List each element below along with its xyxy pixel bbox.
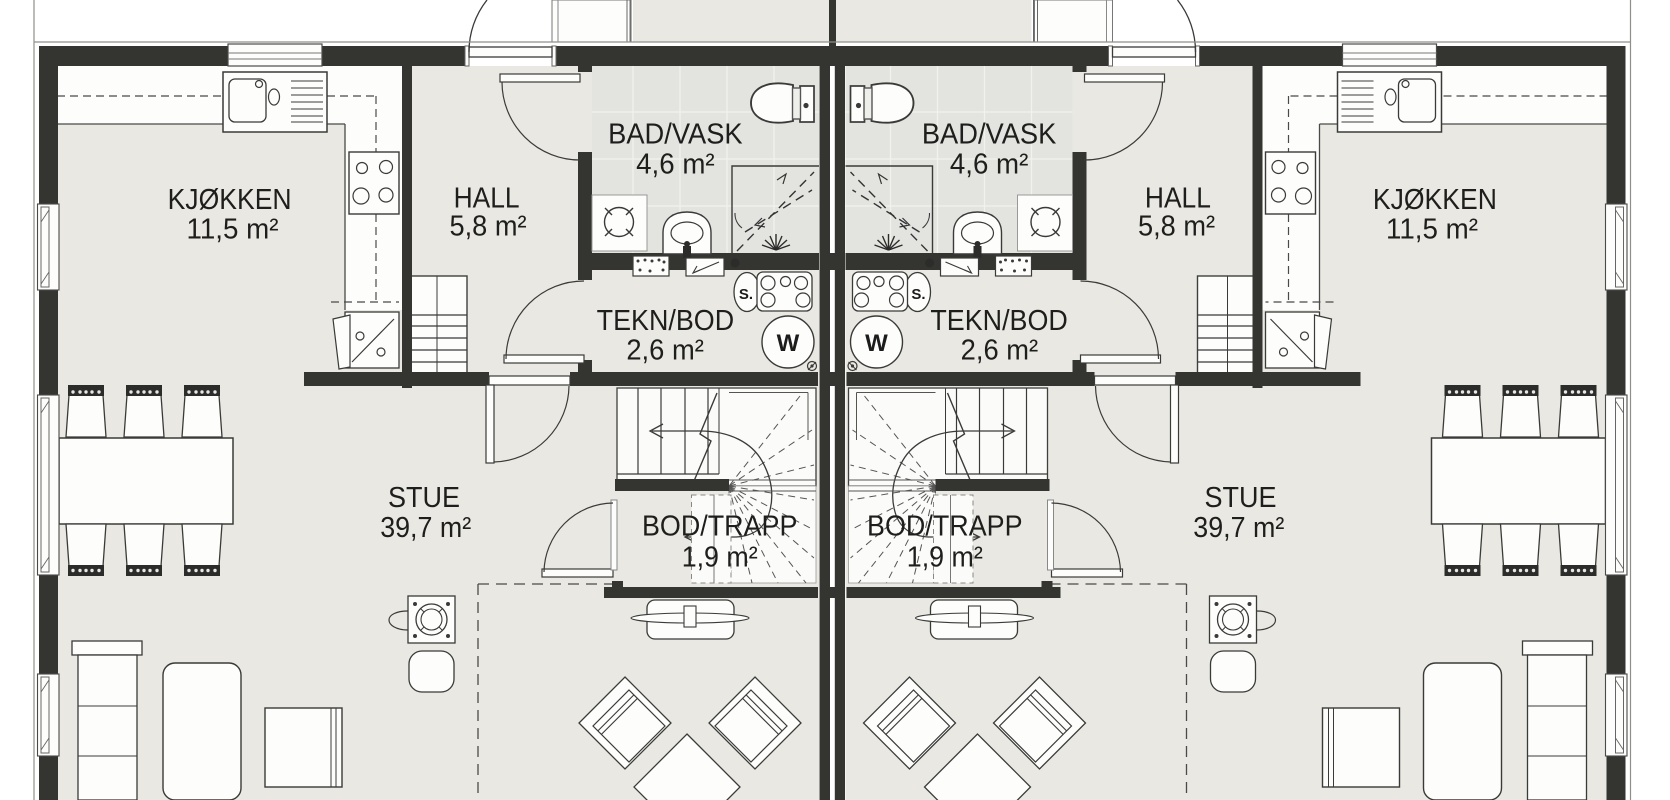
svg-text:BAD/VASK: BAD/VASK xyxy=(608,119,743,151)
svg-text:4,6 m²: 4,6 m² xyxy=(636,149,715,181)
svg-text:2,6 m²: 2,6 m² xyxy=(626,335,704,367)
svg-text:BOD/TRAPP: BOD/TRAPP xyxy=(867,511,1023,543)
svg-text:TEKN/BOD: TEKN/BOD xyxy=(930,305,1068,337)
svg-text:4,6 m²: 4,6 m² xyxy=(950,149,1029,181)
svg-text:STUE: STUE xyxy=(1205,482,1277,514)
svg-text:5,8 m²: 5,8 m² xyxy=(1138,211,1215,243)
svg-text:2,6 m²: 2,6 m² xyxy=(961,335,1039,367)
svg-text:S.: S. xyxy=(739,286,753,303)
svg-text:STUE: STUE xyxy=(388,482,460,514)
svg-text:KJØKKEN: KJØKKEN xyxy=(1373,184,1497,216)
svg-text:W: W xyxy=(865,330,888,357)
svg-text:BAD/VASK: BAD/VASK xyxy=(922,119,1057,151)
svg-text:39,7 m²: 39,7 m² xyxy=(1193,512,1284,544)
svg-text:5,8 m²: 5,8 m² xyxy=(450,211,527,243)
svg-text:11,5 m²: 11,5 m² xyxy=(187,214,279,246)
svg-text:1,9 m²: 1,9 m² xyxy=(907,542,983,574)
svg-text:S.: S. xyxy=(911,286,925,303)
svg-text:11,5 m²: 11,5 m² xyxy=(1386,214,1478,246)
svg-text:39,7 m²: 39,7 m² xyxy=(380,512,471,544)
svg-text:KJØKKEN: KJØKKEN xyxy=(168,184,292,216)
svg-text:BOD/TRAPP: BOD/TRAPP xyxy=(642,511,798,543)
svg-text:W: W xyxy=(777,330,800,357)
svg-text:TEKN/BOD: TEKN/BOD xyxy=(597,305,735,337)
svg-text:1,9 m²: 1,9 m² xyxy=(682,542,758,574)
